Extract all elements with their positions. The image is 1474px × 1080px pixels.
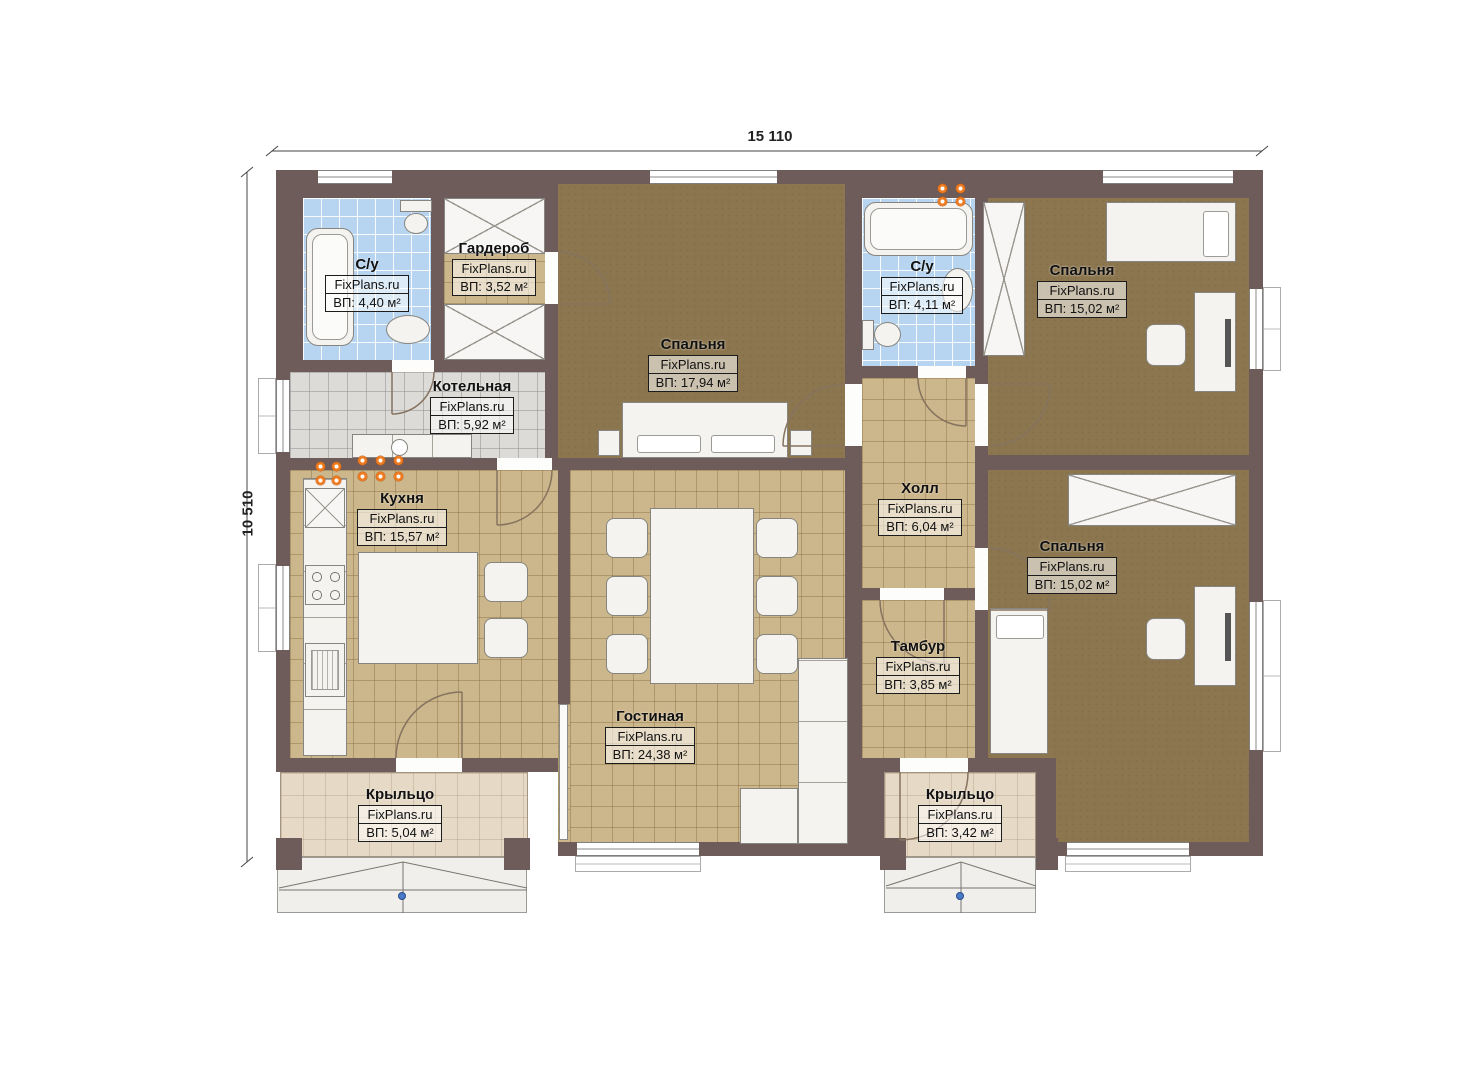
utility-marker-icon — [956, 197, 965, 206]
room-info-box: FixPlans.ru ВП: 24,38 м² — [605, 727, 696, 764]
dimension-width-label: 15 110 — [640, 128, 900, 145]
door-gap-bathroom-2 — [918, 366, 966, 378]
door-gap-kitchen-porch — [396, 758, 462, 772]
room-area: ВП: 3,85 м² — [877, 676, 958, 693]
room-name: Котельная — [433, 378, 512, 395]
room-area: ВП: 5,04 м² — [359, 824, 440, 841]
desk-bottom-right-monitor — [1225, 613, 1231, 661]
steps-left-lines — [278, 858, 528, 914]
door-gap-bedroom-center — [845, 384, 862, 446]
sill-right-bedroom-bottom — [1263, 600, 1281, 752]
steps-left — [277, 857, 527, 913]
nightstand-left — [598, 430, 620, 456]
sill-left-kitchen — [258, 564, 276, 652]
room-brand: FixPlans.ru — [326, 276, 407, 294]
room-info-box: FixPlans.ru ВП: 17,94 м² — [648, 355, 739, 392]
desk-top-right — [1194, 292, 1236, 392]
dining-chair-right-2 — [756, 576, 798, 616]
door-leaf-kitchen-living — [559, 704, 568, 840]
sill-bottom-bedroom — [1065, 856, 1191, 872]
room-info-box: FixPlans.ru ВП: 15,02 м² — [1027, 557, 1118, 594]
sill-bottom-living — [575, 856, 701, 872]
bed-bottom-right — [990, 608, 1048, 754]
utility-marker-icon — [938, 197, 947, 206]
window-top-bedroom-right — [1103, 170, 1233, 184]
room-label-bedroom-top-right: Спальня FixPlans.ru ВП: 15,02 м² — [1027, 262, 1137, 318]
bed-top-right — [1106, 202, 1236, 262]
door-gap-vestibule-porch — [900, 758, 968, 772]
bed-center-pillow-right — [711, 435, 775, 453]
room-info-box: FixPlans.ru ВП: 4,40 м² — [325, 275, 408, 312]
room-brand: FixPlans.ru — [879, 500, 960, 518]
steps-right — [884, 857, 1036, 913]
room-info-box: FixPlans.ru ВП: 15,57 м² — [357, 509, 448, 546]
kitchen-chair-2 — [484, 618, 528, 658]
room-label-bedroom-bottom-right: Спальня FixPlans.ru ВП: 15,02 м² — [1017, 538, 1127, 594]
toilet-2-bowl — [874, 322, 901, 347]
steps-right-lines — [885, 858, 1037, 914]
utility-marker-icon — [394, 456, 403, 465]
room-label-bathroom-2: С/у FixPlans.ru ВП: 4,11 м² — [867, 258, 977, 314]
chair-top-right — [1146, 324, 1186, 366]
porch-right-wall-stub-right — [1036, 838, 1058, 870]
room-label-wardrobe: Гардероб FixPlans.ru ВП: 3,52 м² — [439, 240, 549, 296]
room-area: ВП: 15,57 м² — [358, 528, 447, 545]
dimension-line-top — [266, 146, 1268, 156]
room-brand: FixPlans.ru — [606, 728, 695, 746]
room-label-porch-left: Крыльцо FixPlans.ru ВП: 5,04 м² — [345, 786, 455, 842]
porch-left-wall-stub-left — [276, 838, 302, 870]
wardrobe-unit-bedroom-top-right — [983, 202, 1025, 356]
room-name: Холл — [901, 480, 939, 497]
room-info-box: FixPlans.ru ВП: 5,92 м² — [430, 397, 513, 434]
door-gap-boiler-kitchen — [497, 458, 552, 470]
kitchen-chair-1 — [484, 562, 528, 602]
room-name: Гостиная — [616, 708, 684, 725]
room-label-bathroom-1: С/у FixPlans.ru ВП: 4,40 м² — [312, 256, 422, 312]
chair-bottom-right — [1146, 618, 1186, 660]
room-brand: FixPlans.ru — [882, 278, 962, 296]
porch-right-wall-stub-left — [880, 838, 906, 870]
kitchen-fridge-detail — [311, 650, 339, 690]
sink-1 — [386, 315, 430, 344]
utility-marker-icon — [358, 456, 367, 465]
room-brand: FixPlans.ru — [877, 658, 958, 676]
utility-marker-icon — [358, 472, 367, 481]
room-area: ВП: 4,40 м² — [326, 294, 407, 311]
steps-left-marker-icon — [398, 892, 406, 900]
room-area: ВП: 15,02 м² — [1028, 576, 1117, 593]
toilet-2-tank — [862, 320, 874, 350]
kitchen-stove — [305, 565, 345, 605]
kitchen-sink-unit — [305, 488, 345, 528]
toilet-1-bowl — [404, 213, 428, 234]
room-brand: FixPlans.ru — [431, 398, 512, 416]
sofa-chaise — [740, 788, 798, 844]
window-left-boiler — [276, 380, 290, 452]
room-info-box: FixPlans.ru ВП: 15,02 м² — [1037, 281, 1128, 318]
utility-marker-icon — [938, 184, 947, 193]
room-label-boiler-room: Котельная FixPlans.ru ВП: 5,92 м² — [417, 378, 527, 434]
toilet-1-tank — [400, 200, 432, 212]
room-label-living-room: Гостиная FixPlans.ru ВП: 24,38 м² — [595, 708, 705, 764]
bathtub-2 — [864, 202, 973, 256]
room-brand: FixPlans.ru — [919, 806, 1000, 824]
room-area: ВП: 6,04 м² — [879, 518, 960, 535]
room-name: Крыльцо — [366, 786, 434, 803]
room-name: Спальня — [1040, 538, 1105, 555]
room-area: ВП: 5,92 м² — [431, 416, 512, 433]
door-gap-bathroom-1 — [392, 360, 434, 372]
wardrobe-unit-bottom — [444, 304, 545, 360]
room-info-box: FixPlans.ru ВП: 3,85 м² — [876, 657, 959, 694]
utility-marker-icon — [316, 476, 325, 485]
door-gap-bedroom-top-right — [975, 384, 988, 446]
dining-chair-left-3 — [606, 634, 648, 674]
boiler-sink — [391, 439, 408, 456]
floor-plan-page: 15 110 10 510 — [0, 0, 1474, 1080]
room-brand: FixPlans.ru — [1038, 282, 1127, 300]
room-label-bedroom-center: Спальня FixPlans.ru ВП: 17,94 м² — [638, 336, 748, 392]
room-name: С/у — [910, 258, 933, 275]
bed-center — [622, 402, 788, 458]
window-top-bathroom-1 — [318, 170, 392, 184]
room-label-hall: Холл FixPlans.ru ВП: 6,04 м² — [865, 480, 975, 536]
room-name: С/у — [355, 256, 378, 273]
room-area: ВП: 4,11 м² — [882, 296, 962, 313]
room-info-box: FixPlans.ru ВП: 5,04 м² — [358, 805, 441, 842]
window-right-bedroom-top — [1249, 289, 1263, 369]
sill-right-bedroom-top — [1263, 287, 1281, 371]
room-name: Тамбур — [891, 638, 945, 655]
room-name: Спальня — [1050, 262, 1115, 279]
sill-left-boiler — [258, 378, 276, 454]
bed-center-pillow-left — [637, 435, 701, 453]
window-bottom-bedroom — [1067, 842, 1189, 856]
kitchen-fridge — [305, 643, 345, 697]
dining-chair-right-1 — [756, 518, 798, 558]
room-label-vestibule: Тамбур FixPlans.ru ВП: 3,85 м² — [863, 638, 973, 694]
room-name: Спальня — [661, 336, 726, 353]
steps-right-marker-icon — [956, 892, 964, 900]
wardrobe-unit-bedroom-bottom-right — [1068, 474, 1236, 526]
window-top-bedroom-center — [650, 170, 777, 184]
room-brand: FixPlans.ru — [453, 260, 534, 278]
room-info-box: FixPlans.ru ВП: 3,42 м² — [918, 805, 1001, 842]
dimension-height-label: 10 510 — [240, 464, 257, 564]
utility-marker-icon — [332, 462, 341, 471]
room-info-box: FixPlans.ru ВП: 6,04 м² — [878, 499, 961, 536]
door-gap-bedroom-bottom-right — [975, 548, 988, 610]
room-area: ВП: 3,42 м² — [919, 824, 1000, 841]
utility-marker-icon — [316, 462, 325, 471]
dining-chair-left-1 — [606, 518, 648, 558]
room-label-porch-right: Крыльцо FixPlans.ru ВП: 3,42 м² — [905, 786, 1015, 842]
room-area: ВП: 15,02 м² — [1038, 300, 1127, 317]
room-area: ВП: 17,94 м² — [649, 374, 738, 391]
nightstand-right — [790, 430, 812, 456]
utility-marker-icon — [394, 472, 403, 481]
bed-bottom-right-pillow — [996, 615, 1044, 639]
utility-marker-icon — [956, 184, 965, 193]
room-brand: FixPlans.ru — [359, 806, 440, 824]
utility-marker-icon — [376, 456, 385, 465]
door-gap-hall-vestibule — [880, 588, 944, 600]
bed-top-right-pillow — [1203, 211, 1229, 257]
desk-bottom-right — [1194, 586, 1236, 686]
boiler-counter — [352, 434, 472, 458]
utility-marker-icon — [332, 476, 341, 485]
room-area: ВП: 3,52 м² — [453, 278, 534, 295]
room-info-box: FixPlans.ru ВП: 3,52 м² — [452, 259, 535, 296]
dining-table — [650, 508, 754, 684]
porch-left-wall-stub-right — [504, 838, 530, 870]
utility-marker-icon — [376, 472, 385, 481]
room-brand: FixPlans.ru — [358, 510, 447, 528]
window-left-kitchen — [276, 566, 290, 650]
kitchen-table — [358, 552, 478, 664]
room-name: Гардероб — [459, 240, 530, 257]
room-name: Кухня — [380, 490, 424, 507]
window-bottom-living — [577, 842, 699, 856]
window-right-bedroom-bottom — [1249, 602, 1263, 750]
room-name: Крыльцо — [926, 786, 994, 803]
room-brand: FixPlans.ru — [1028, 558, 1117, 576]
desk-top-right-monitor — [1225, 319, 1231, 367]
dining-chair-left-2 — [606, 576, 648, 616]
sofa-main — [798, 658, 848, 844]
dining-chair-right-3 — [756, 634, 798, 674]
bathtub-2-basin — [870, 208, 967, 250]
room-area: ВП: 24,38 м² — [606, 746, 695, 763]
room-label-kitchen: Кухня FixPlans.ru ВП: 15,57 м² — [347, 490, 457, 546]
room-info-box: FixPlans.ru ВП: 4,11 м² — [881, 277, 963, 314]
room-brand: FixPlans.ru — [649, 356, 738, 374]
floor-bedroom-bottom-right-lower — [1056, 758, 1249, 842]
